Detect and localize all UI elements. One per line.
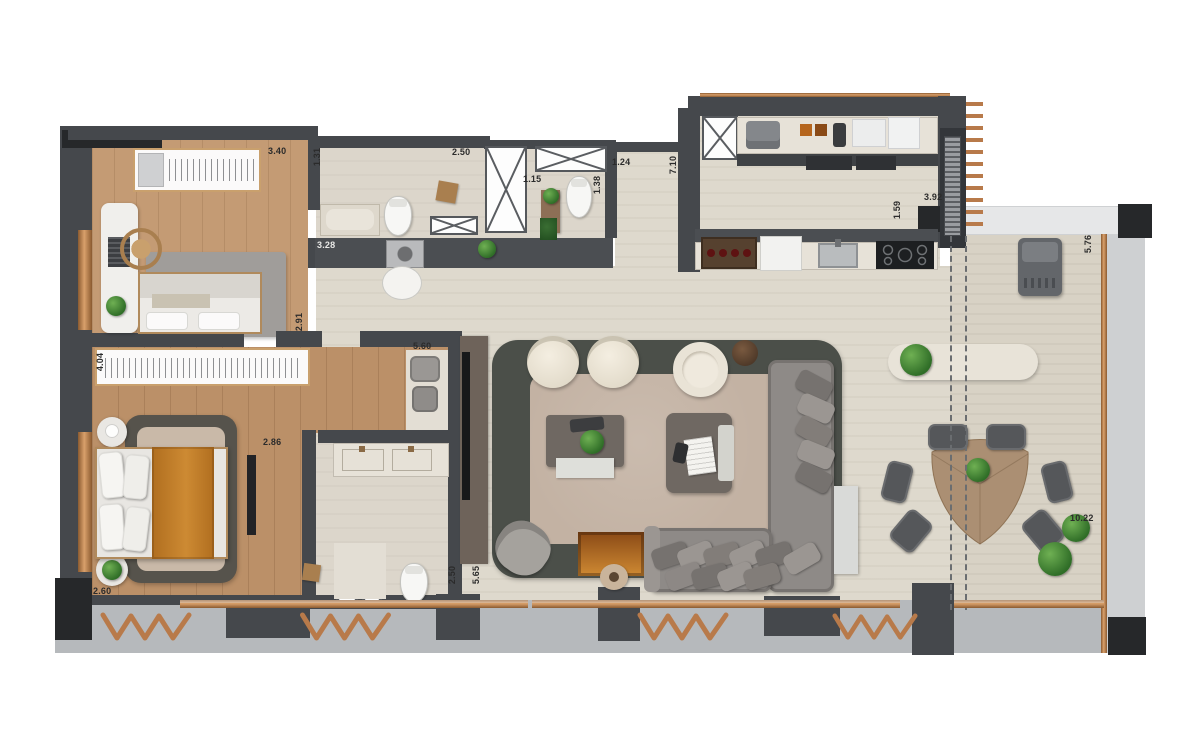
- closet-chair-2: [412, 386, 438, 412]
- wall-bedroom1-bottom-a: [92, 333, 244, 347]
- coffee-machine: [746, 121, 780, 149]
- laundry-basin: [382, 266, 422, 300]
- wine-rack: [701, 237, 757, 269]
- bathtub: [320, 204, 380, 236]
- armchair-3: [673, 342, 728, 397]
- dim-label-grill-wall: 3.92: [924, 192, 942, 202]
- dim-label-closet-length: 5.60: [413, 341, 431, 351]
- shower-floor: [334, 543, 386, 599]
- bathroom1-toilet: [384, 196, 412, 236]
- master-bed-throw: [152, 447, 214, 559]
- master-pillow-2: [122, 454, 150, 500]
- powder-moss-panel: [540, 218, 557, 240]
- shaft-xbox-bath: [430, 216, 478, 235]
- cooktop: [876, 241, 934, 269]
- master-stool: [302, 563, 321, 582]
- grill-grate: [944, 136, 961, 236]
- dim-label-hall-width: 1.24: [612, 157, 630, 167]
- desk-plant: [106, 296, 126, 316]
- master-wardrobe: [95, 348, 310, 386]
- books-stack: [684, 436, 717, 476]
- pillar-terrace-corner: [1108, 617, 1146, 655]
- shaft-xbox-1: [485, 146, 527, 233]
- bedroom1-wardrobe: [133, 148, 261, 192]
- rangehood-1: [806, 156, 852, 170]
- coffee-table-1-shelf: [556, 458, 614, 478]
- vanity-sink-2: [392, 449, 432, 471]
- sliding-glass-line-1: [950, 236, 952, 610]
- wall-top-bedroom1: [68, 126, 318, 140]
- shaft-xbox-kitchen: [702, 116, 738, 160]
- tv-screen: [462, 352, 470, 500]
- master-toilet: [400, 563, 428, 603]
- window-bedroom1-left: [78, 230, 92, 330]
- dining-chair-1: [928, 424, 968, 450]
- pergola-slats: [966, 102, 983, 232]
- coffee-table-2-tray: [718, 425, 734, 481]
- dim-label-bath1-entry: 1.31: [312, 142, 322, 172]
- terrace-console-plant: [900, 344, 932, 376]
- folding-shutter-3: [634, 612, 732, 642]
- floor-plan: 3.40 1.31 2.50 1.15 1.38 1.24 7.10 3.28 …: [0, 0, 1200, 750]
- wall-closet-top: [360, 331, 448, 347]
- terrace-planter-top: [963, 206, 1120, 235]
- master-tv: [247, 455, 256, 535]
- bedroom1-throw: [152, 294, 210, 308]
- dim-label-masterbath-length: 5.65: [471, 560, 481, 590]
- dim-label-bedroom1-depth: 2.91: [294, 307, 304, 337]
- wardrobe-hangers: [169, 159, 255, 181]
- folding-shutter-4: [832, 612, 918, 642]
- dim-label-hall-length: 7.10: [668, 150, 678, 180]
- nightstand-top: [97, 417, 127, 447]
- terrace-bush-1: [1038, 542, 1072, 576]
- wall-terrace-top-corner: [1118, 204, 1152, 238]
- laundry-counter: [315, 238, 613, 268]
- dim-label-terrace-depth: 5.76: [1083, 229, 1093, 259]
- dim-label-master-width: 2.86: [263, 437, 281, 447]
- appliance-white-1: [852, 119, 886, 147]
- dim-label-terrace-length: 10.22: [1070, 513, 1094, 523]
- folding-shutter-2: [298, 612, 393, 642]
- dim-label-master-depth: 2.60: [93, 586, 111, 596]
- side-console-white: [834, 486, 858, 574]
- dim-label-bath1-width: 2.50: [452, 147, 470, 157]
- bedroom1-pillow-1: [146, 312, 188, 330]
- window-master-left: [78, 432, 92, 572]
- sliding-glass-line-2: [965, 236, 967, 610]
- dim-label-laundry-width: 3.28: [317, 240, 335, 250]
- master-wardrobe-hangers: [105, 358, 301, 378]
- pillar-5: [912, 583, 954, 655]
- sliding-door-track-3: [954, 600, 1104, 608]
- nightstand-plant: [102, 560, 122, 580]
- vanity-sink-1: [342, 449, 384, 471]
- coffee-table-plant: [580, 430, 604, 454]
- dining-table: [916, 432, 1042, 556]
- dim-label-powder-width: 1.15: [523, 174, 541, 184]
- armchair-1: [527, 336, 579, 388]
- powder-plant: [543, 188, 559, 204]
- dim-label-powder-depth: 1.38: [592, 170, 602, 200]
- sliding-door-track-2: [532, 600, 900, 608]
- canister-1: [800, 124, 812, 136]
- dried-plant-pot: [732, 340, 758, 366]
- stand-mixer: [833, 123, 846, 147]
- closet-chair-1: [410, 356, 440, 382]
- kitchen-sink: [818, 243, 858, 268]
- bbq-cart: [1018, 238, 1062, 296]
- dim-label-bedroom1-width: 3.40: [268, 146, 286, 156]
- dining-table-plant: [966, 458, 990, 482]
- desk-chair: [120, 228, 162, 270]
- canister-2: [815, 124, 827, 136]
- terrace-paving-right: [1106, 233, 1145, 653]
- bedroom1-pillow-2: [198, 312, 240, 330]
- dishwasher: [760, 236, 802, 271]
- pillar-bottom-left: [55, 578, 92, 640]
- terrace-edge-trim: [1101, 234, 1107, 653]
- shaft-xbox-2: [535, 146, 607, 172]
- sliding-door-track-1: [180, 600, 528, 608]
- powder-toilet: [566, 176, 592, 218]
- laundry-plant: [478, 240, 496, 258]
- dining-chair-2: [986, 424, 1026, 450]
- wall-kitchen-top: [688, 96, 966, 116]
- wardrobe-shelf-box: [138, 153, 164, 187]
- wall-closet-bottom: [318, 430, 450, 443]
- armchair-2: [587, 336, 639, 388]
- dim-label-kitchen-pass: 1.59: [892, 195, 902, 225]
- rangehood-2: [856, 156, 896, 170]
- bath1-stool: [435, 180, 458, 203]
- folding-shutter-1: [100, 612, 192, 642]
- kitchen-top-trim: [700, 93, 950, 97]
- dim-label-master-wardrobe: 4.04: [95, 347, 105, 377]
- side-table-round: [600, 564, 628, 590]
- dim-label-masterbath-width: 2.50: [447, 560, 457, 590]
- appliance-white-2: [888, 117, 920, 149]
- washing-machine: [386, 240, 424, 268]
